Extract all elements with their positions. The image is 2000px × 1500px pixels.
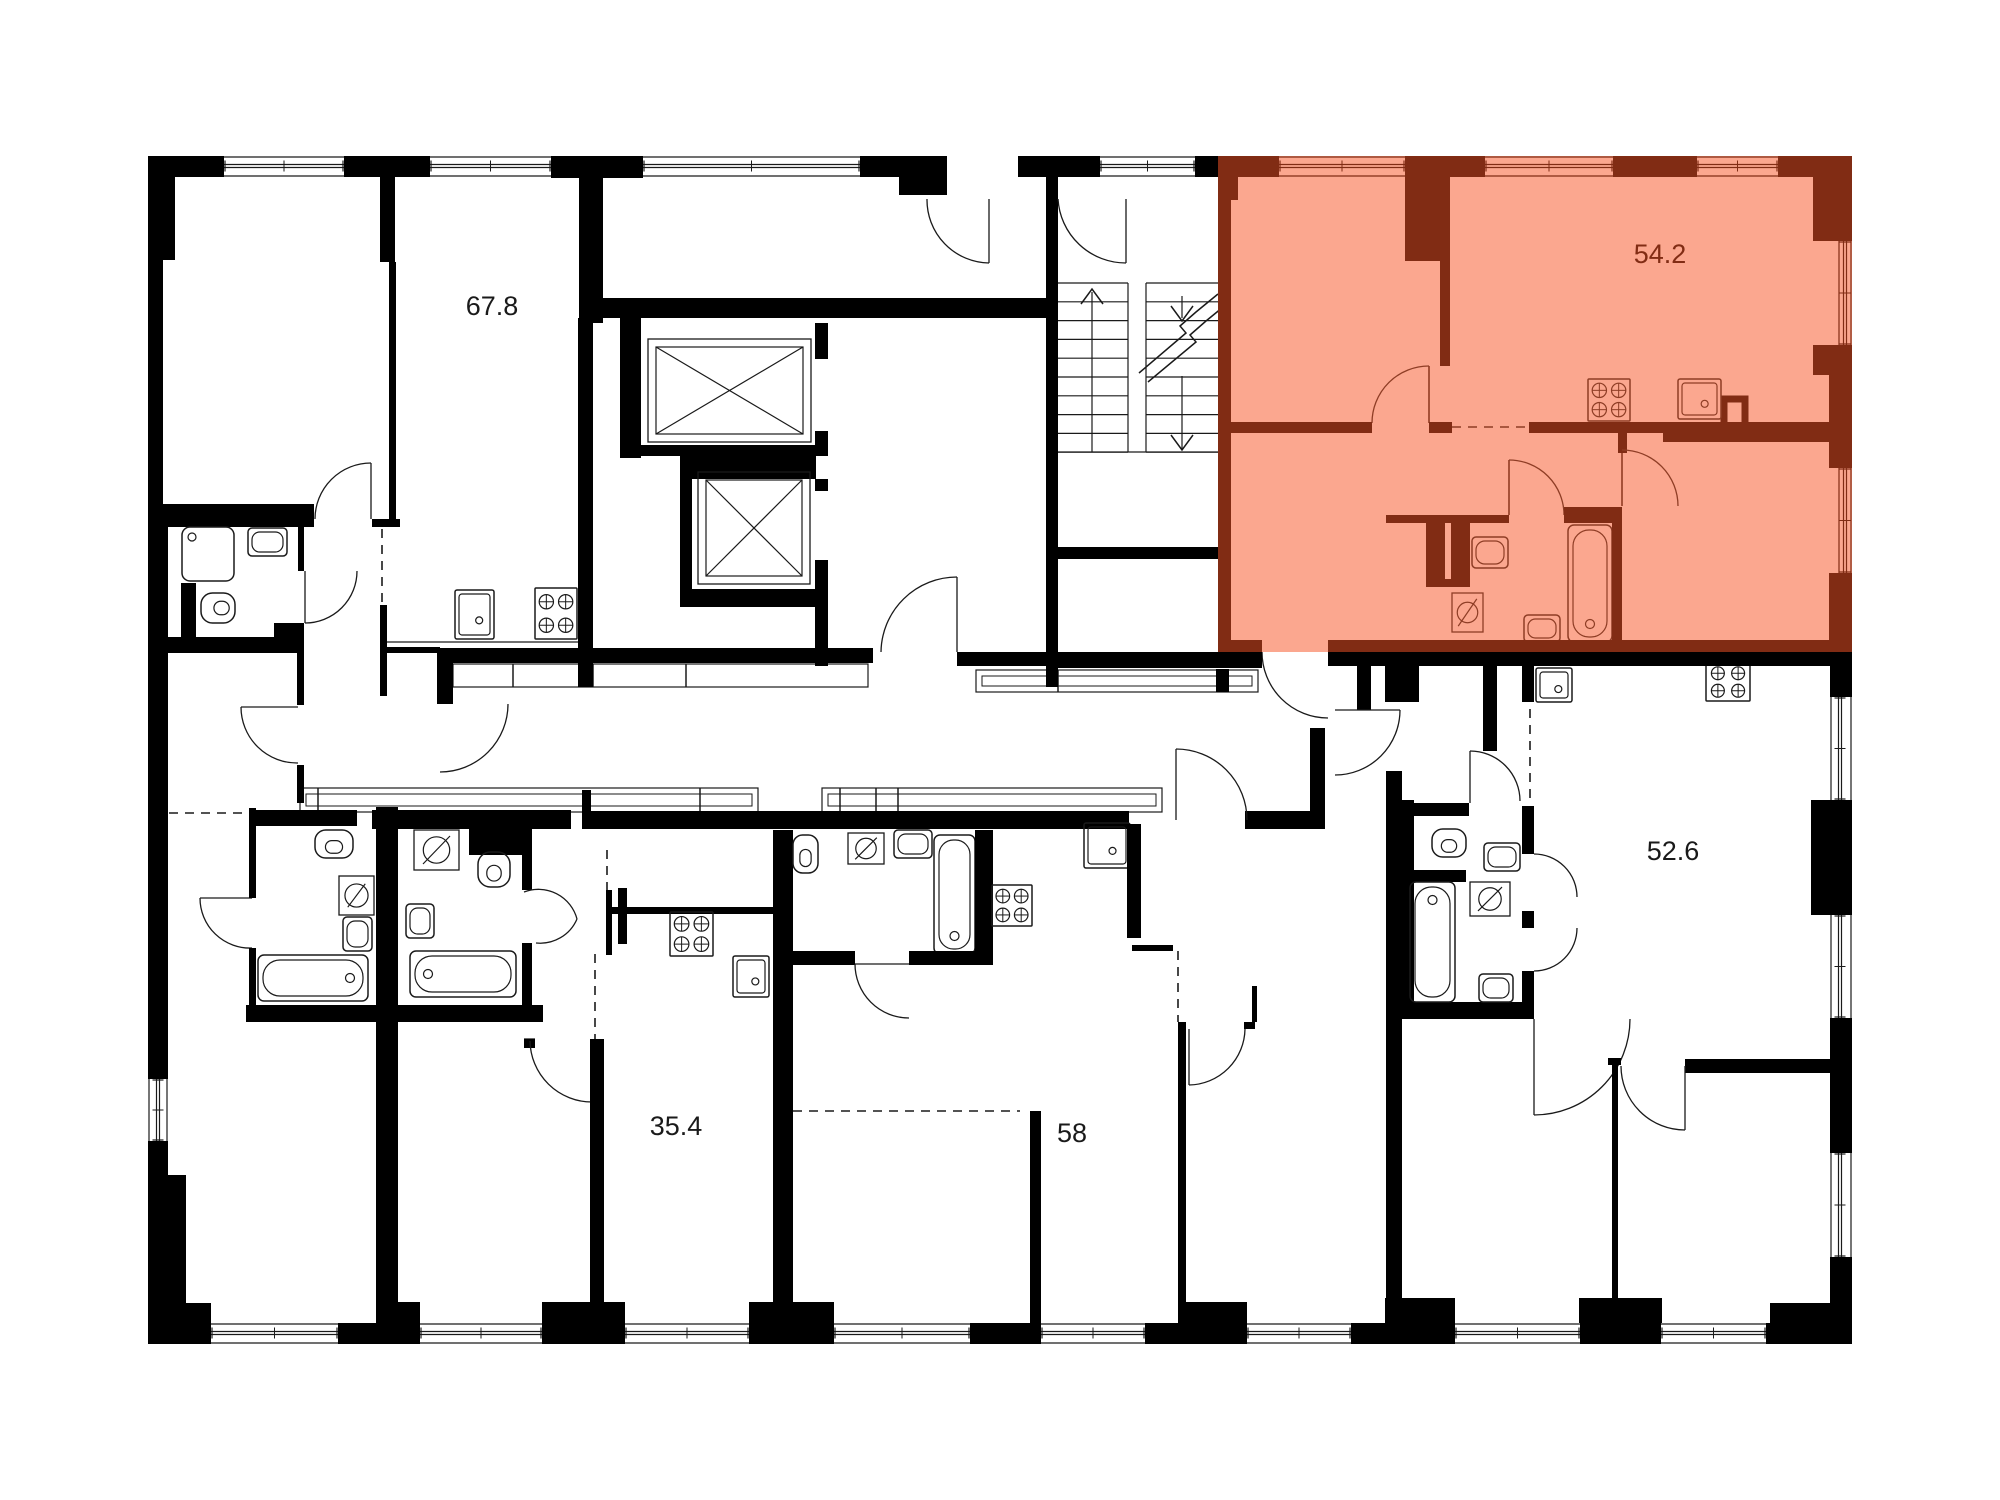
svg-text:67.8: 67.8 <box>466 291 519 321</box>
svg-text:35.4: 35.4 <box>650 1111 703 1141</box>
svg-text:54.2: 54.2 <box>1634 239 1687 269</box>
svg-text:52.6: 52.6 <box>1647 836 1700 866</box>
svg-text:58: 58 <box>1057 1118 1087 1148</box>
